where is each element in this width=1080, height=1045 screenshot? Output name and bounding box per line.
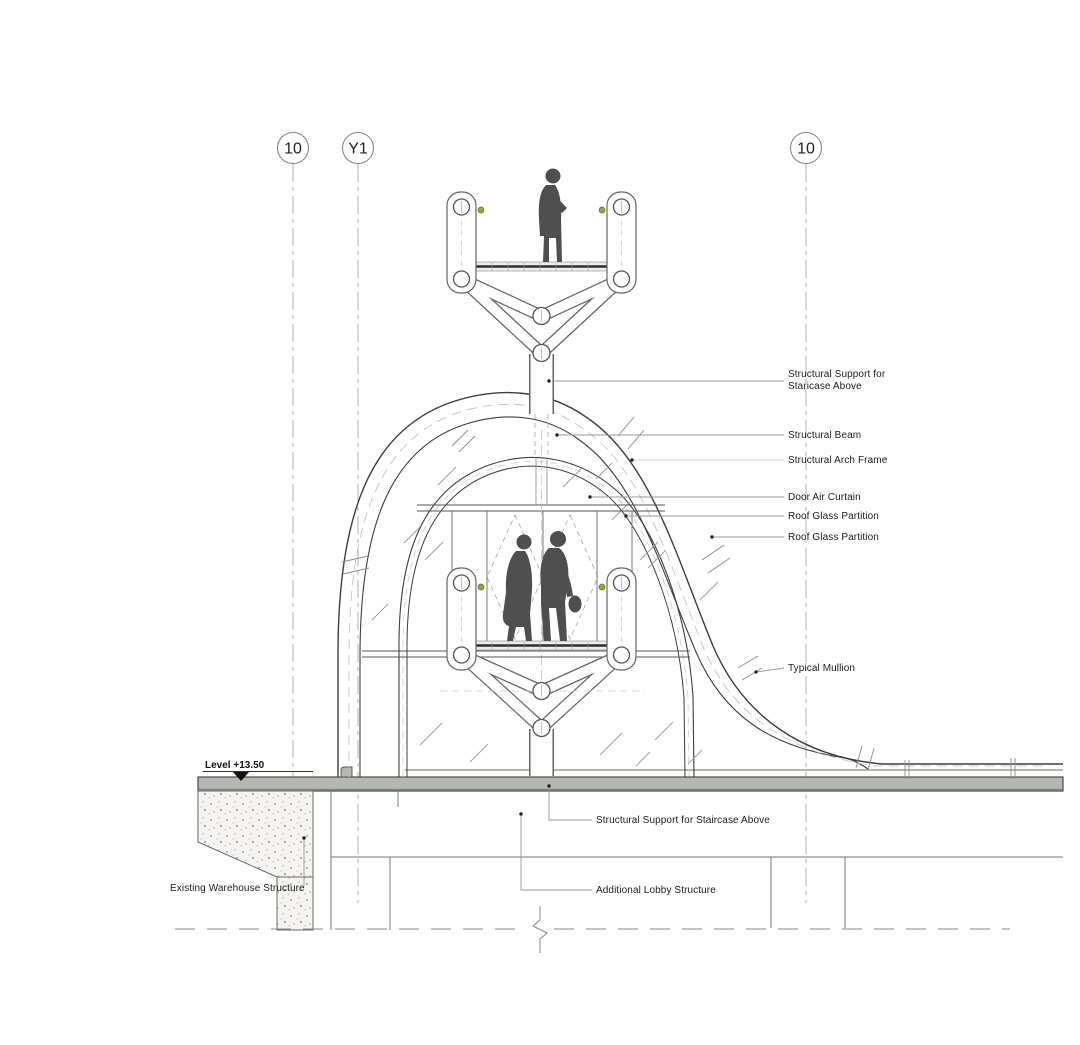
- callout-structural-arch-frame: Structural Arch Frame: [788, 455, 888, 466]
- concrete-outline: [198, 791, 313, 930]
- callout-staircase-support-bottom: Structural Support for Staircase Above: [596, 815, 770, 826]
- break-line-symbol: [533, 906, 547, 953]
- concrete-structure: [198, 791, 313, 930]
- callout-existing-warehouse: Existing Warehouse Structure: [170, 883, 305, 894]
- callout-roof-glass-partition-2: Roof Glass Partition: [788, 532, 879, 543]
- architectural-section-drawing: 10 Y1 10 Level +13.50 Existing Warehouse…: [0, 0, 1080, 1045]
- section-drawing-canvas: 10 Y1 10 Level +13.50 Existing Warehouse…: [0, 0, 1080, 1045]
- grid-label-y1: Y1: [348, 141, 368, 158]
- grid-lines: [293, 164, 806, 903]
- callout-additional-lobby: Additional Lobby Structure: [596, 885, 716, 896]
- door-air-curtain-beam: [417, 505, 665, 511]
- callouts-right: Structural Support for Staricase Above S…: [788, 369, 888, 674]
- slab-curb: [341, 767, 352, 777]
- callout-roof-glass-partition-1: Roof Glass Partition: [788, 511, 879, 522]
- grid-markers: 10 Y1 10: [278, 133, 822, 164]
- person-top: [539, 169, 567, 263]
- mullion-ticks: [342, 417, 1015, 779]
- level-label: Level +13.50: [205, 760, 265, 771]
- grid-label-10-left: 10: [284, 141, 302, 158]
- callout-staircase-support-line2: Staricase Above: [788, 381, 862, 392]
- mid-deck: [476, 641, 607, 650]
- lower-structural-beam: [362, 651, 690, 657]
- top-deck: [476, 262, 608, 271]
- person-couple: [503, 531, 582, 641]
- callout-leaders-bottom: [519, 784, 592, 890]
- callout-staircase-support-line1: Structural Support for: [788, 369, 886, 380]
- callout-structural-beam: Structural Beam: [788, 430, 861, 441]
- callout-door-air-curtain: Door Air Curtain: [788, 492, 861, 503]
- grid-label-10-right: 10: [797, 141, 815, 158]
- callout-typical-mullion: Typical Mullion: [788, 663, 855, 674]
